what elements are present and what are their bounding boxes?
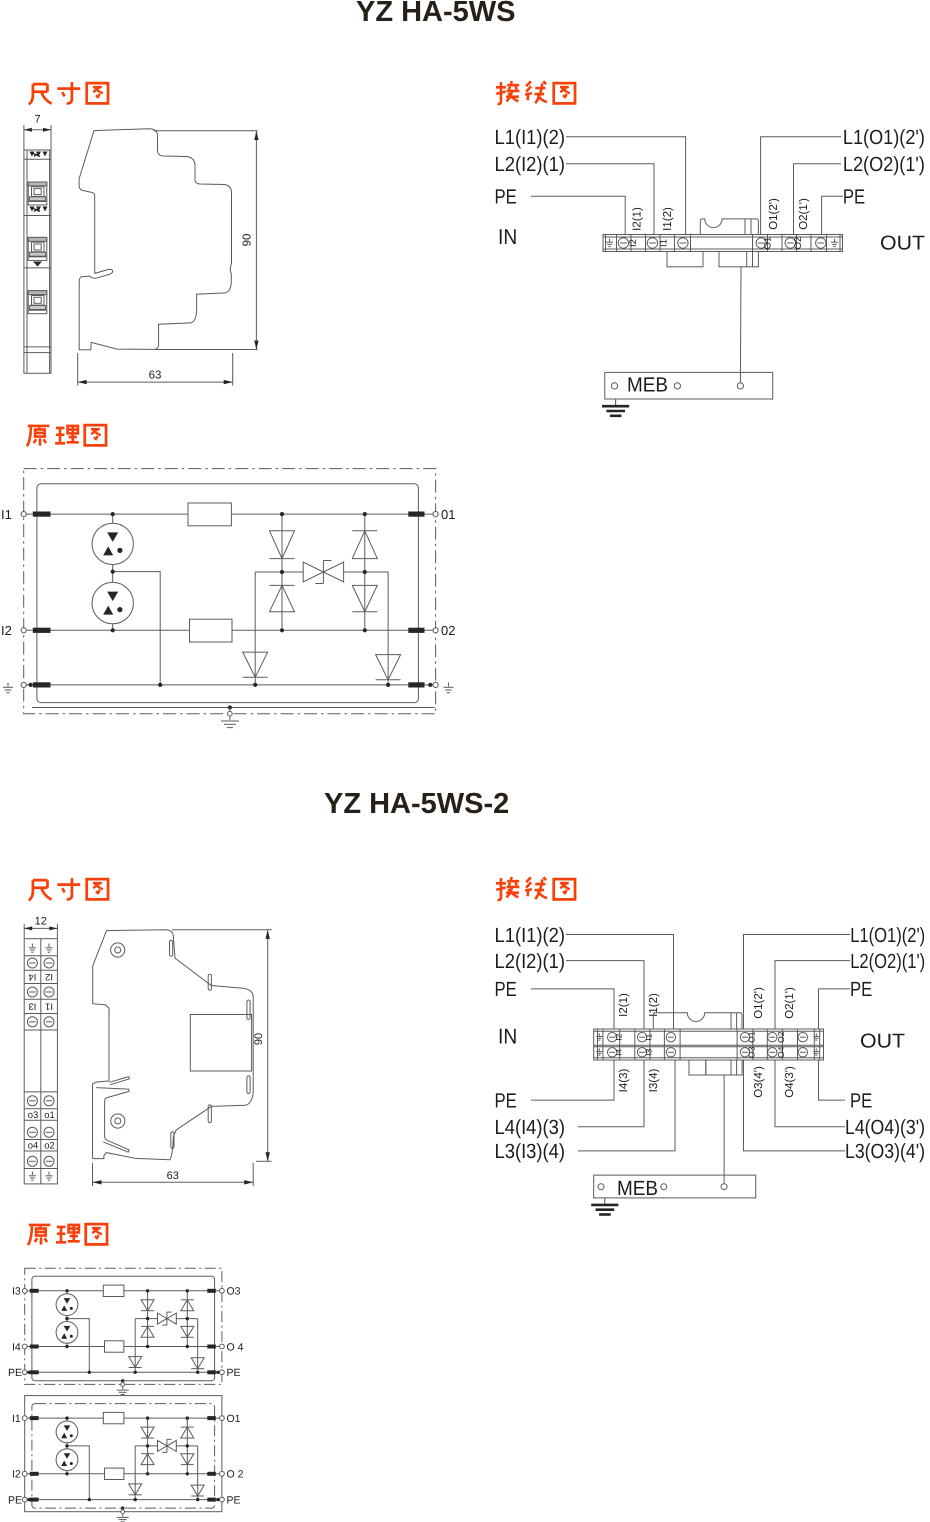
svg-text:I1(2): I1(2): [662, 207, 674, 231]
svg-text:I3: I3: [28, 1001, 36, 1012]
svg-text:L3(O3)(4'): L3(O3)(4'): [845, 1140, 925, 1163]
svg-text:L1(O1)(2'): L1(O1)(2'): [850, 924, 925, 947]
svg-text:O3: O3: [747, 1046, 757, 1058]
svg-text:o3: o3: [28, 1110, 39, 1121]
svg-text:PE: PE: [8, 1494, 22, 1506]
svg-text:I2: I2: [12, 1469, 21, 1481]
svg-text:L4(O4)(3'): L4(O4)(3'): [845, 1116, 925, 1139]
svg-text:PE: PE: [850, 978, 872, 1001]
svg-text:PE: PE: [227, 1494, 241, 1506]
svg-text:O 4: O 4: [227, 1341, 244, 1353]
svg-text:PE: PE: [843, 186, 865, 209]
svg-text:PE: PE: [495, 978, 517, 1001]
svg-text:I4: I4: [12, 1341, 21, 1353]
svg-text:I4: I4: [614, 1048, 624, 1055]
svg-text:O 2: O 2: [227, 1469, 244, 1481]
svg-text:L1(O1)(2'): L1(O1)(2'): [843, 126, 925, 149]
svg-text:O2(1'): O2(1'): [798, 198, 810, 230]
svg-text:O3: O3: [227, 1286, 241, 1298]
svg-text:o4: o4: [28, 1141, 39, 1152]
svg-text:o1: o1: [44, 1110, 55, 1121]
svg-text:L1(I1)(2): L1(I1)(2): [495, 924, 566, 947]
svg-text:I1: I1: [1, 507, 12, 522]
svg-text:O4: O4: [776, 1046, 786, 1058]
svg-text:I2: I2: [1, 623, 12, 638]
svg-text:I1: I1: [12, 1413, 21, 1425]
svg-text:I3: I3: [644, 1048, 654, 1055]
svg-text:L2(O2)(1'): L2(O2)(1'): [850, 950, 925, 973]
svg-text:O2: O2: [776, 1031, 786, 1043]
svg-text:63: 63: [149, 370, 162, 382]
svg-text:I2(1): I2(1): [632, 207, 644, 231]
svg-text:O4(3'): O4(3'): [784, 1066, 796, 1098]
svg-text:I2: I2: [628, 239, 639, 247]
svg-text:L4(I4)(3): L4(I4)(3): [495, 1116, 566, 1139]
svg-text:PE: PE: [227, 1367, 241, 1379]
svg-text:O1: O1: [763, 237, 774, 250]
svg-text:OUT: OUT: [860, 1031, 905, 1053]
svg-text:I2: I2: [614, 1033, 624, 1040]
svg-text:PE: PE: [495, 186, 517, 209]
svg-text:O2(1'): O2(1'): [784, 987, 796, 1019]
svg-text:O1(2'): O1(2'): [753, 987, 765, 1019]
svg-text:O1: O1: [227, 1413, 241, 1425]
svg-text:L3(I3)(4): L3(I3)(4): [495, 1140, 566, 1163]
svg-text:O3(4'): O3(4'): [753, 1066, 765, 1098]
svg-text:o2: o2: [44, 1141, 55, 1152]
svg-text:O1(2'): O1(2'): [768, 198, 780, 230]
svg-text:I2: I2: [45, 971, 53, 982]
svg-text:L1(I1)(2): L1(I1)(2): [495, 126, 566, 149]
svg-text:PE: PE: [850, 1089, 872, 1112]
svg-text:O2: O2: [793, 237, 804, 250]
svg-text:I4: I4: [28, 971, 36, 982]
svg-text:O1: O1: [747, 1031, 757, 1043]
svg-text:90: 90: [242, 234, 254, 247]
svg-text:I1: I1: [644, 1033, 654, 1040]
svg-text:L2(O2)(1'): L2(O2)(1'): [843, 153, 925, 176]
svg-text:MEB: MEB: [627, 374, 668, 397]
svg-text:12: 12: [35, 916, 47, 928]
svg-text:IN: IN: [498, 225, 517, 249]
svg-text:I1: I1: [45, 1001, 53, 1012]
svg-text:I1: I1: [659, 239, 670, 247]
svg-text:L2(I2)(1): L2(I2)(1): [495, 950, 566, 973]
svg-text:OUT: OUT: [880, 233, 925, 255]
svg-text:I3: I3: [12, 1286, 21, 1298]
svg-text:I3(4): I3(4): [648, 1069, 660, 1093]
svg-text:02: 02: [441, 623, 455, 638]
svg-text:90: 90: [253, 1033, 265, 1045]
svg-text:63: 63: [167, 1170, 179, 1182]
svg-text:01: 01: [441, 507, 455, 522]
svg-text:PE: PE: [495, 1089, 517, 1112]
svg-text:MEB: MEB: [617, 1177, 658, 1200]
svg-text:PE: PE: [8, 1367, 22, 1379]
svg-text:IN: IN: [498, 1025, 517, 1049]
svg-text:L2(I2)(1): L2(I2)(1): [495, 153, 566, 176]
svg-text:7: 7: [34, 114, 40, 126]
svg-text:I2(1): I2(1): [618, 993, 630, 1017]
svg-text:I4(3): I4(3): [618, 1069, 630, 1093]
